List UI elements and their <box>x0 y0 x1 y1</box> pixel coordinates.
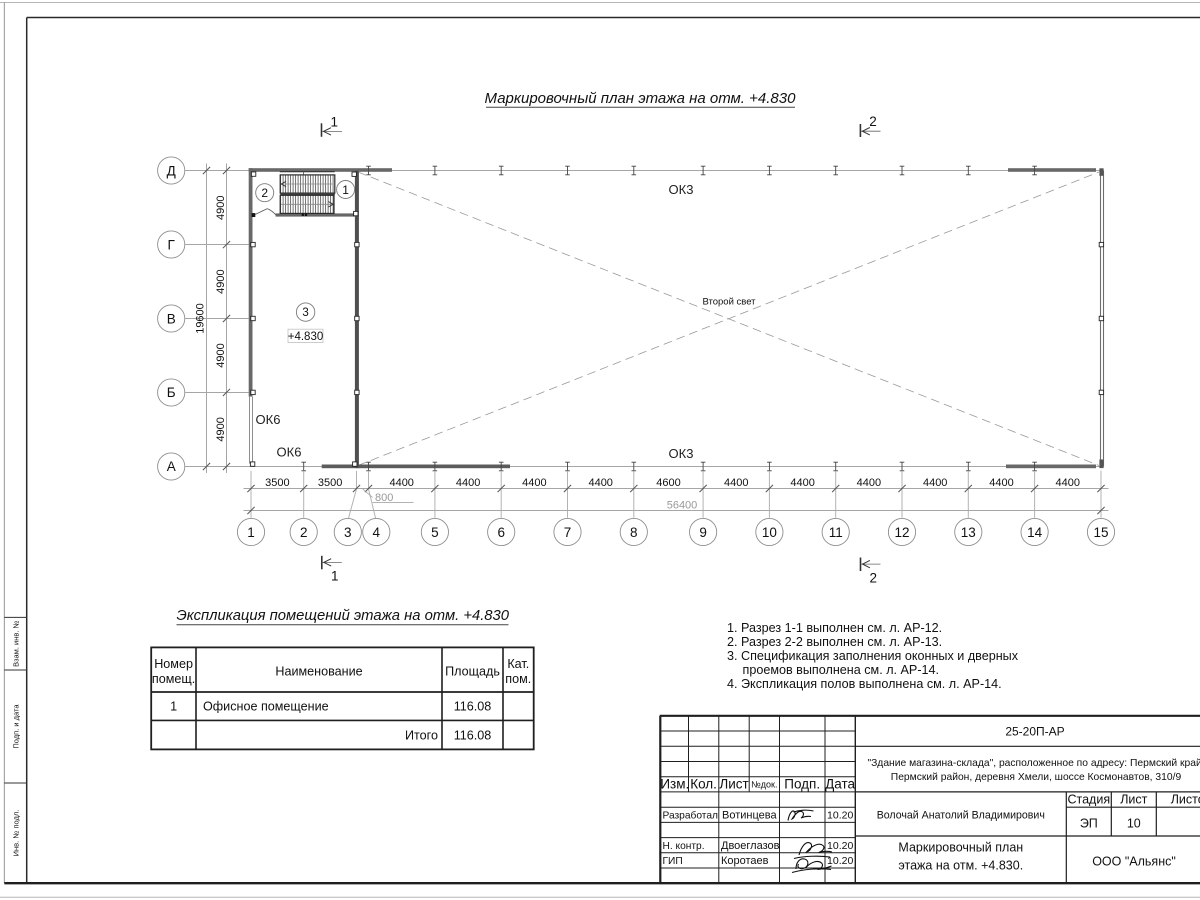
svg-text:10.20: 10.20 <box>827 855 853 867</box>
svg-text:ОК3: ОК3 <box>669 446 694 461</box>
svg-text:4900: 4900 <box>215 417 227 441</box>
svg-text:56400: 56400 <box>667 500 698 512</box>
svg-text:7: 7 <box>564 525 572 540</box>
svg-text:3500: 3500 <box>318 477 342 489</box>
svg-text:ОК6: ОК6 <box>256 412 281 427</box>
svg-text:ЭП: ЭП <box>1080 817 1098 831</box>
svg-text:ООО "Альянс": ООО "Альянс" <box>1092 855 1176 869</box>
svg-text:Лист: Лист <box>1120 793 1147 807</box>
svg-text:4600: 4600 <box>656 477 680 489</box>
svg-text:10: 10 <box>762 525 777 540</box>
svg-text:4400: 4400 <box>857 477 881 489</box>
svg-text:800: 800 <box>375 492 393 504</box>
svg-text:2: 2 <box>869 114 877 129</box>
svg-text:9: 9 <box>699 525 707 540</box>
svg-text:1: 1 <box>331 569 339 584</box>
svg-text:Волочай Анатолий Владимирович: Волочай Анатолий Владимирович <box>877 810 1045 822</box>
svg-text:Второй свет: Второй свет <box>702 296 756 307</box>
svg-text:Подп. и дата: Подп. и дата <box>11 704 20 749</box>
svg-text:Взам. инв. №: Взам. инв. № <box>11 620 20 666</box>
svg-text:10: 10 <box>1127 817 1141 831</box>
svg-text:Маркировочный план этажа на от: Маркировочный план этажа на отм. +4.830 <box>485 90 797 107</box>
svg-text:Разработал: Разработал <box>663 809 719 821</box>
svg-text:Офисное помещение: Офисное помещение <box>203 700 329 714</box>
svg-text:2: 2 <box>300 525 308 540</box>
svg-text:4900: 4900 <box>215 195 227 219</box>
svg-text:Дата: Дата <box>825 777 855 792</box>
svg-text:3: 3 <box>344 525 352 540</box>
svg-text:19600: 19600 <box>194 303 206 334</box>
svg-text:1: 1 <box>247 525 255 540</box>
svg-text:А: А <box>167 459 176 474</box>
svg-text:25-20П-АР: 25-20П-АР <box>1005 725 1064 739</box>
svg-text:Пермский район, деревня Хмели,: Пермский район, деревня Хмели, шоссе Кос… <box>891 772 1182 783</box>
svg-text:Н. контр.: Н. контр. <box>663 841 705 852</box>
svg-text:"Здание магазина-склада", расп: "Здание магазина-склада", расположенное … <box>867 758 1200 769</box>
svg-text:11: 11 <box>829 525 843 540</box>
svg-text:Наименование: Наименование <box>275 665 362 679</box>
svg-text:помещ.: помещ. <box>152 672 195 686</box>
svg-text:2. Разрез 2-2 выполнен см. л.: 2. Разрез 2-2 выполнен см. л. АР-13. <box>727 635 942 649</box>
svg-text:2: 2 <box>870 570 878 585</box>
svg-text:Д: Д <box>167 164 176 179</box>
svg-text:+4.830: +4.830 <box>288 331 324 343</box>
svg-text:3500: 3500 <box>265 477 289 489</box>
svg-text:4400: 4400 <box>456 477 480 489</box>
svg-text:4400: 4400 <box>1056 477 1080 489</box>
svg-text:Г: Г <box>168 237 176 252</box>
svg-text:15: 15 <box>1093 525 1108 540</box>
svg-text:проемов выполнена см. л. АР-14: проемов выполнена см. л. АР-14. <box>743 663 940 677</box>
svg-text:4400: 4400 <box>522 477 546 489</box>
svg-text:1: 1 <box>342 183 349 197</box>
svg-text:Стадия: Стадия <box>1067 793 1110 807</box>
svg-text:Номер: Номер <box>154 657 193 671</box>
svg-text:Изм.: Изм. <box>660 777 689 792</box>
svg-text:4900: 4900 <box>215 269 227 293</box>
svg-text:13: 13 <box>961 525 976 540</box>
svg-text:4400: 4400 <box>790 477 814 489</box>
svg-text:4400: 4400 <box>989 477 1013 489</box>
svg-text:ОК3: ОК3 <box>669 182 694 197</box>
svg-text:Площадь: Площадь <box>445 665 500 679</box>
svg-text:ГИП: ГИП <box>663 856 683 867</box>
svg-text:Лист: Лист <box>719 777 748 792</box>
svg-text:2: 2 <box>261 186 268 200</box>
svg-text:Инв. № подл.: Инв. № подл. <box>11 810 20 857</box>
svg-text:4900: 4900 <box>215 343 227 367</box>
svg-text:10.20: 10.20 <box>827 840 853 852</box>
svg-text:Коротаев: Коротаев <box>721 855 769 867</box>
svg-text:1. Разрез 1-1 выполнен см. л.: 1. Разрез 1-1 выполнен см. л. АР-12. <box>727 621 942 635</box>
svg-text:Кат.: Кат. <box>507 657 529 671</box>
svg-text:В: В <box>167 311 176 326</box>
svg-text:Итого: Итого <box>405 729 438 743</box>
svg-text:Двоеглазов: Двоеглазов <box>721 840 780 852</box>
svg-text:5: 5 <box>431 525 439 540</box>
svg-text:116.08: 116.08 <box>454 700 492 714</box>
svg-text:пом.: пом. <box>505 672 531 686</box>
svg-text:10.20: 10.20 <box>827 809 853 821</box>
svg-text:Экспликация помещений этажа на: Экспликация помещений этажа на отм. +4.8… <box>177 608 510 624</box>
svg-text:Листов: Листов <box>1171 793 1200 807</box>
svg-text:8: 8 <box>630 525 638 540</box>
svg-text:4. Экспликация полов выполнена: 4. Экспликация полов выполнена см. л. АР… <box>727 677 1002 691</box>
svg-text:этажа на отм. +4.830.: этажа на отм. +4.830. <box>898 859 1023 873</box>
svg-text:4400: 4400 <box>588 477 612 489</box>
svg-text:4400: 4400 <box>389 477 413 489</box>
svg-text:4: 4 <box>373 525 381 540</box>
svg-text:Подп.: Подп. <box>784 777 820 792</box>
svg-text:Вотинцева: Вотинцева <box>722 810 777 822</box>
svg-text:1: 1 <box>170 700 177 714</box>
svg-text:6: 6 <box>497 525 505 540</box>
svg-text:ОК6: ОК6 <box>277 444 302 459</box>
svg-text:Маркировочный план: Маркировочный план <box>898 841 1023 855</box>
svg-text:116.08: 116.08 <box>454 729 492 743</box>
svg-text:1: 1 <box>331 114 339 129</box>
svg-text:14: 14 <box>1027 525 1043 540</box>
svg-text:4400: 4400 <box>923 477 947 489</box>
svg-text:4400: 4400 <box>724 477 748 489</box>
svg-text:Б: Б <box>167 385 176 400</box>
svg-text:№док.: №док. <box>751 780 777 790</box>
svg-text:12: 12 <box>894 525 909 540</box>
svg-text:Кол.: Кол. <box>690 777 717 792</box>
svg-text:3. Спецификация заполнения око: 3. Спецификация заполнения оконных и две… <box>727 649 1019 663</box>
svg-text:3: 3 <box>302 307 308 319</box>
